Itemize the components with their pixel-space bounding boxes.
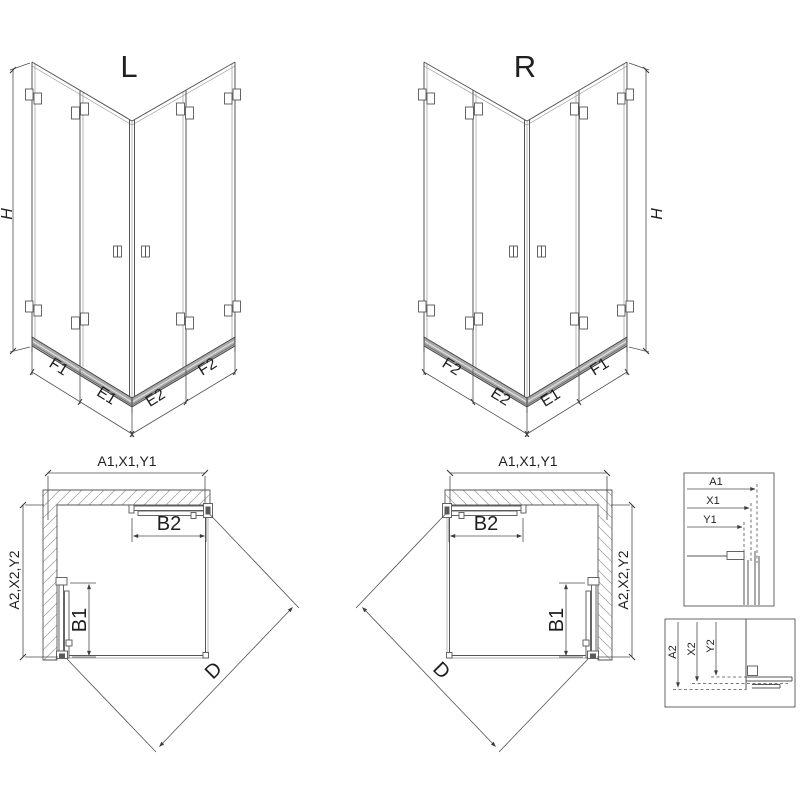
iso-view-left: L H F1 E1 E2 F2	[0, 49, 241, 437]
detail-label-x2: X2	[686, 642, 698, 655]
detail-box-bottom-frame	[665, 619, 795, 707]
side-door-label-right: B1	[546, 608, 568, 632]
top-door-label-right: B2	[474, 513, 498, 535]
detail-label-x1: X1	[706, 495, 719, 507]
variant-title-left: L	[120, 49, 137, 84]
plan-width-label-right: A1,X1,Y1	[498, 453, 557, 469]
plan-view-right: A1,X1,Y1 A2,X2,Y2 B2 B1 D	[356, 453, 635, 752]
iso-left-line-art	[10, 62, 241, 437]
height-dimension-label-right: H	[649, 208, 666, 220]
height-dimension-label-left: H	[0, 208, 16, 220]
detail-box-top-frame	[684, 473, 774, 606]
iso-view-right: R H F2 E2 E1 F1	[419, 49, 667, 437]
detail-label-a1: A1	[709, 476, 722, 488]
diagonal-label-left: D	[201, 658, 227, 684]
plan-view-left: A1,X1,Y1 A2,X2,Y2 B2 B1 D	[6, 453, 299, 752]
plan-depth-label-left: A2,X2,Y2	[6, 550, 22, 609]
side-door-label-left: B1	[69, 608, 91, 632]
iso-right-line-art	[419, 62, 650, 437]
top-door-label-left: B2	[157, 513, 181, 535]
detail-box-horizontal-offsets: A1 X1 Y1	[684, 473, 774, 606]
detail-label-y2: Y2	[705, 639, 717, 652]
plan-width-label-left: A1,X1,Y1	[97, 453, 156, 469]
shower-enclosure-technical-drawing: L H F1 E1 E2 F2 R H F2 E2 E1 F1 A1,X1,Y1…	[0, 0, 800, 800]
plan-depth-label-right: A2,X2,Y2	[615, 550, 631, 609]
detail-label-y1: Y1	[703, 514, 716, 526]
variant-title-right: R	[514, 49, 536, 84]
detail-label-a2: A2	[667, 645, 679, 658]
detail-box-vertical-offsets: A2 X2 Y2	[665, 619, 795, 707]
drawing-canvas: L H F1 E1 E2 F2 R H F2 E2 E1 F1 A1,X1,Y1…	[0, 0, 800, 800]
diagonal-label-right: D	[428, 658, 454, 684]
